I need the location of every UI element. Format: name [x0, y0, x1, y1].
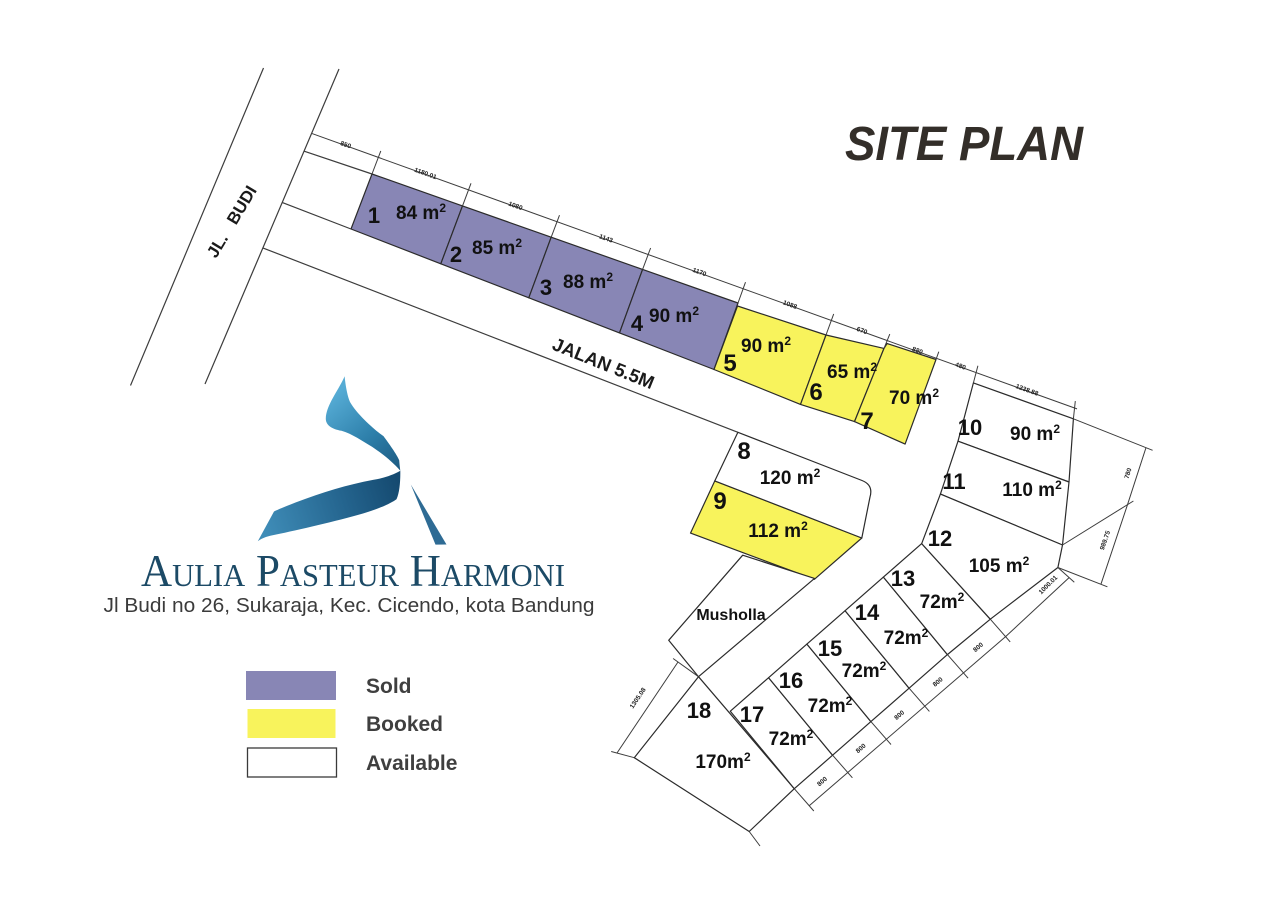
svg-text:10: 10 — [958, 415, 982, 440]
svg-text:90 m2: 90 m2 — [649, 304, 699, 327]
svg-text:2: 2 — [450, 242, 462, 267]
svg-text:5: 5 — [723, 350, 736, 377]
svg-text:70 m2: 70 m2 — [889, 386, 939, 409]
svg-text:14: 14 — [855, 600, 880, 625]
svg-text:120 m2: 120 m2 — [760, 466, 821, 489]
svg-text:16: 16 — [779, 668, 803, 693]
svg-text:1: 1 — [368, 203, 380, 228]
svg-text:12: 12 — [928, 526, 952, 551]
svg-text:Available: Available — [366, 752, 457, 775]
svg-text:90 m2: 90 m2 — [1010, 422, 1060, 445]
svg-text:13: 13 — [891, 566, 915, 591]
svg-text:8: 8 — [737, 438, 750, 465]
svg-text:170m2: 170m2 — [695, 750, 751, 773]
svg-text:84 m2: 84 m2 — [396, 201, 446, 224]
svg-text:Aulia Pasteur Harmoni: Aulia Pasteur Harmoni — [141, 546, 565, 596]
svg-text:65 m2: 65 m2 — [827, 360, 877, 383]
svg-text:Musholla: Musholla — [696, 607, 765, 624]
svg-text:105 m2: 105 m2 — [969, 554, 1030, 577]
svg-text:SITE PLAN: SITE PLAN — [845, 118, 1084, 171]
svg-text:7: 7 — [860, 408, 873, 435]
svg-text:11: 11 — [942, 469, 965, 494]
svg-text:90 m2: 90 m2 — [741, 334, 791, 357]
svg-text:88 m2: 88 m2 — [563, 270, 613, 293]
svg-text:Jl Budi no 26, Sukaraja, Kec.: Jl Budi no 26, Sukaraja, Kec. Cicendo, k… — [104, 595, 595, 617]
svg-text:4: 4 — [631, 311, 644, 336]
svg-text:110 m2: 110 m2 — [1002, 478, 1062, 501]
svg-text:15: 15 — [818, 636, 842, 661]
svg-text:6: 6 — [809, 379, 822, 406]
svg-text:Booked: Booked — [366, 713, 443, 736]
svg-text:Sold: Sold — [366, 675, 412, 698]
svg-text:85 m2: 85 m2 — [472, 236, 522, 259]
svg-text:17: 17 — [740, 702, 764, 727]
svg-text:9: 9 — [713, 488, 726, 515]
svg-text:112 m2: 112 m2 — [748, 519, 808, 542]
svg-text:3: 3 — [540, 275, 552, 300]
svg-text:18: 18 — [687, 698, 711, 723]
